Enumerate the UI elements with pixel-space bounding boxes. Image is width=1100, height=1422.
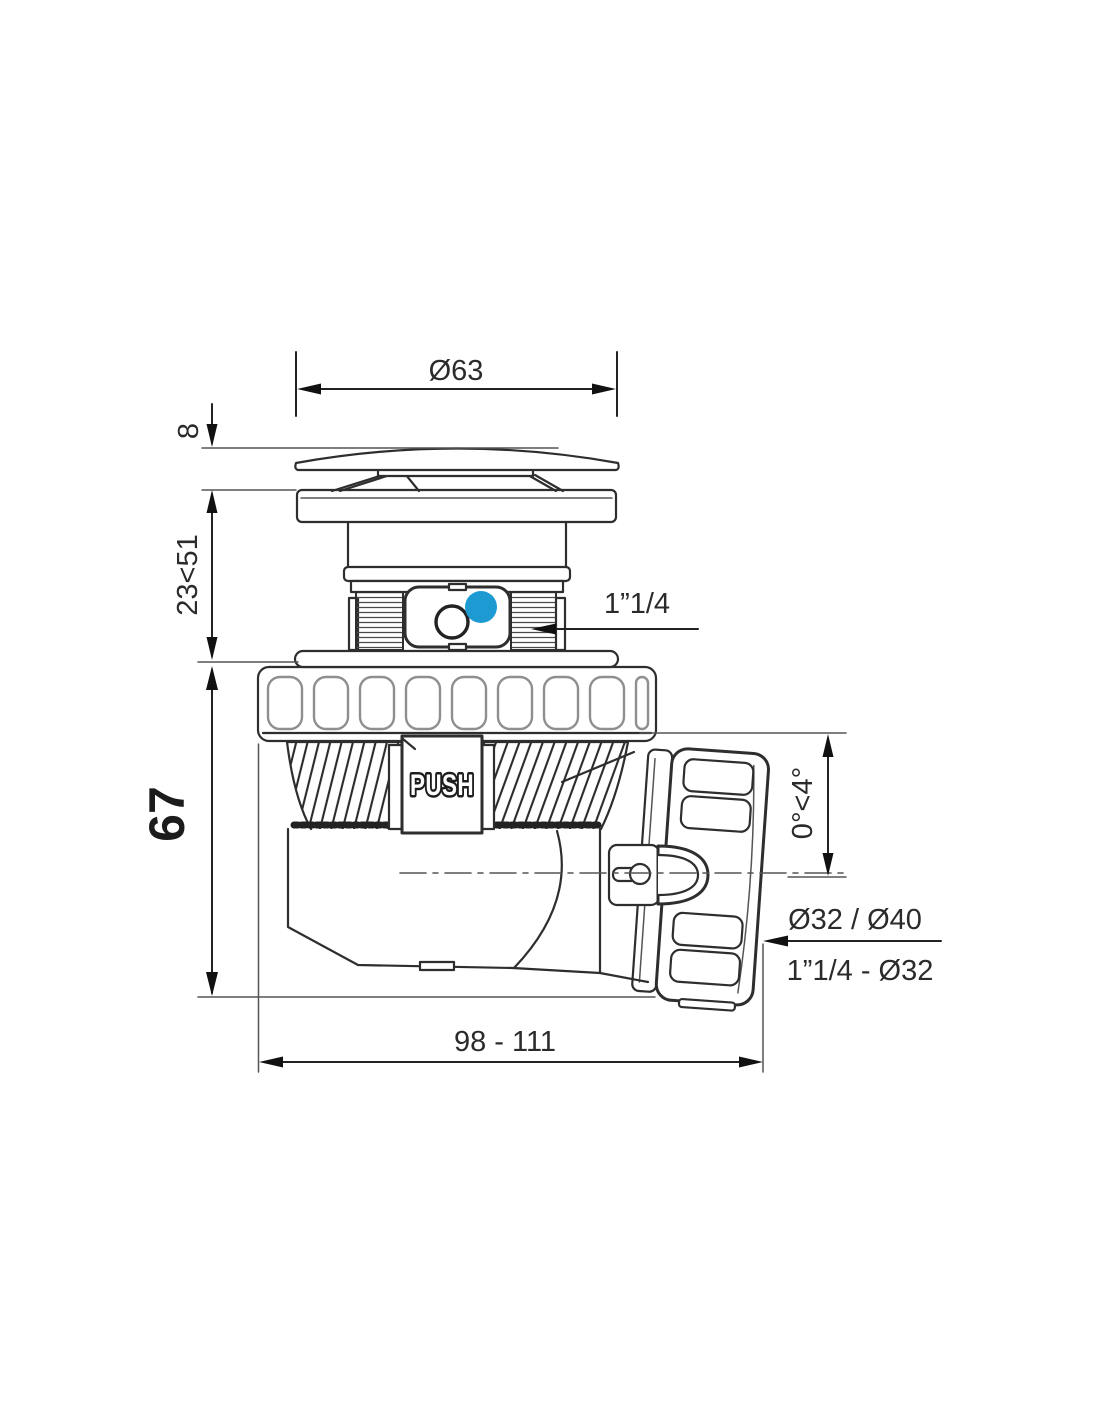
inlet-thread-left xyxy=(356,592,403,650)
technical-drawing: PUSH Ø63 8 23<51 67 1”1 xyxy=(0,0,1100,1422)
arrow-down xyxy=(207,637,218,660)
drawing-canvas: PUSH Ø63 8 23<51 67 1”1 xyxy=(0,0,1100,1422)
push-button[interactable]: PUSH xyxy=(389,736,494,833)
stem-body xyxy=(348,521,566,568)
white-dot xyxy=(436,606,468,638)
plate-notch-top xyxy=(449,584,466,590)
dim-cap-height: 8 xyxy=(173,423,205,439)
arrow-right xyxy=(739,1057,763,1068)
push-label: PUSH xyxy=(410,769,474,802)
inlet-thread-right xyxy=(511,592,556,650)
cartridge-plate xyxy=(405,584,510,650)
trap-bowl xyxy=(288,829,600,973)
keyhole-icon xyxy=(630,864,650,884)
cap-strut xyxy=(406,475,419,491)
ring-nut xyxy=(258,667,656,741)
arrow-left xyxy=(763,936,788,947)
arrow-right xyxy=(592,384,616,395)
arrow-left xyxy=(297,384,321,395)
arrow-up xyxy=(207,490,218,513)
dim-cap-diameter: Ø63 xyxy=(429,355,484,387)
cap-flange xyxy=(297,490,616,522)
dim-outlet-thread: 1”1/4 - Ø32 xyxy=(787,955,934,987)
ring-nut-collar xyxy=(295,651,618,667)
cap-strut xyxy=(528,475,556,491)
cap-dome xyxy=(295,449,618,471)
dim-adjustable-height: 23<51 xyxy=(172,534,204,615)
arrow-left xyxy=(259,1057,283,1068)
dim-outlet-sizes: Ø32 / Ø40 xyxy=(788,904,922,936)
arrow-up xyxy=(823,734,834,757)
stem-ring xyxy=(344,567,570,581)
thread-side-tab xyxy=(556,598,565,650)
arrow-down xyxy=(207,424,218,447)
plate-notch-bottom xyxy=(449,644,466,650)
cap-strut xyxy=(340,475,390,491)
dim-overall-length: 98 - 111 xyxy=(454,1026,556,1058)
cap-strut xyxy=(535,475,563,491)
arrow-up xyxy=(206,666,218,690)
dim-inlet-thread: 1”1/4 xyxy=(604,588,670,620)
blue-dot xyxy=(465,591,497,623)
arrow-down xyxy=(206,972,218,996)
bowl-foot-notch xyxy=(420,962,454,970)
cap-strut xyxy=(332,475,383,491)
dim-body-height: 67 xyxy=(139,786,195,842)
dim-outlet-angle: 0°<4° xyxy=(787,767,819,839)
